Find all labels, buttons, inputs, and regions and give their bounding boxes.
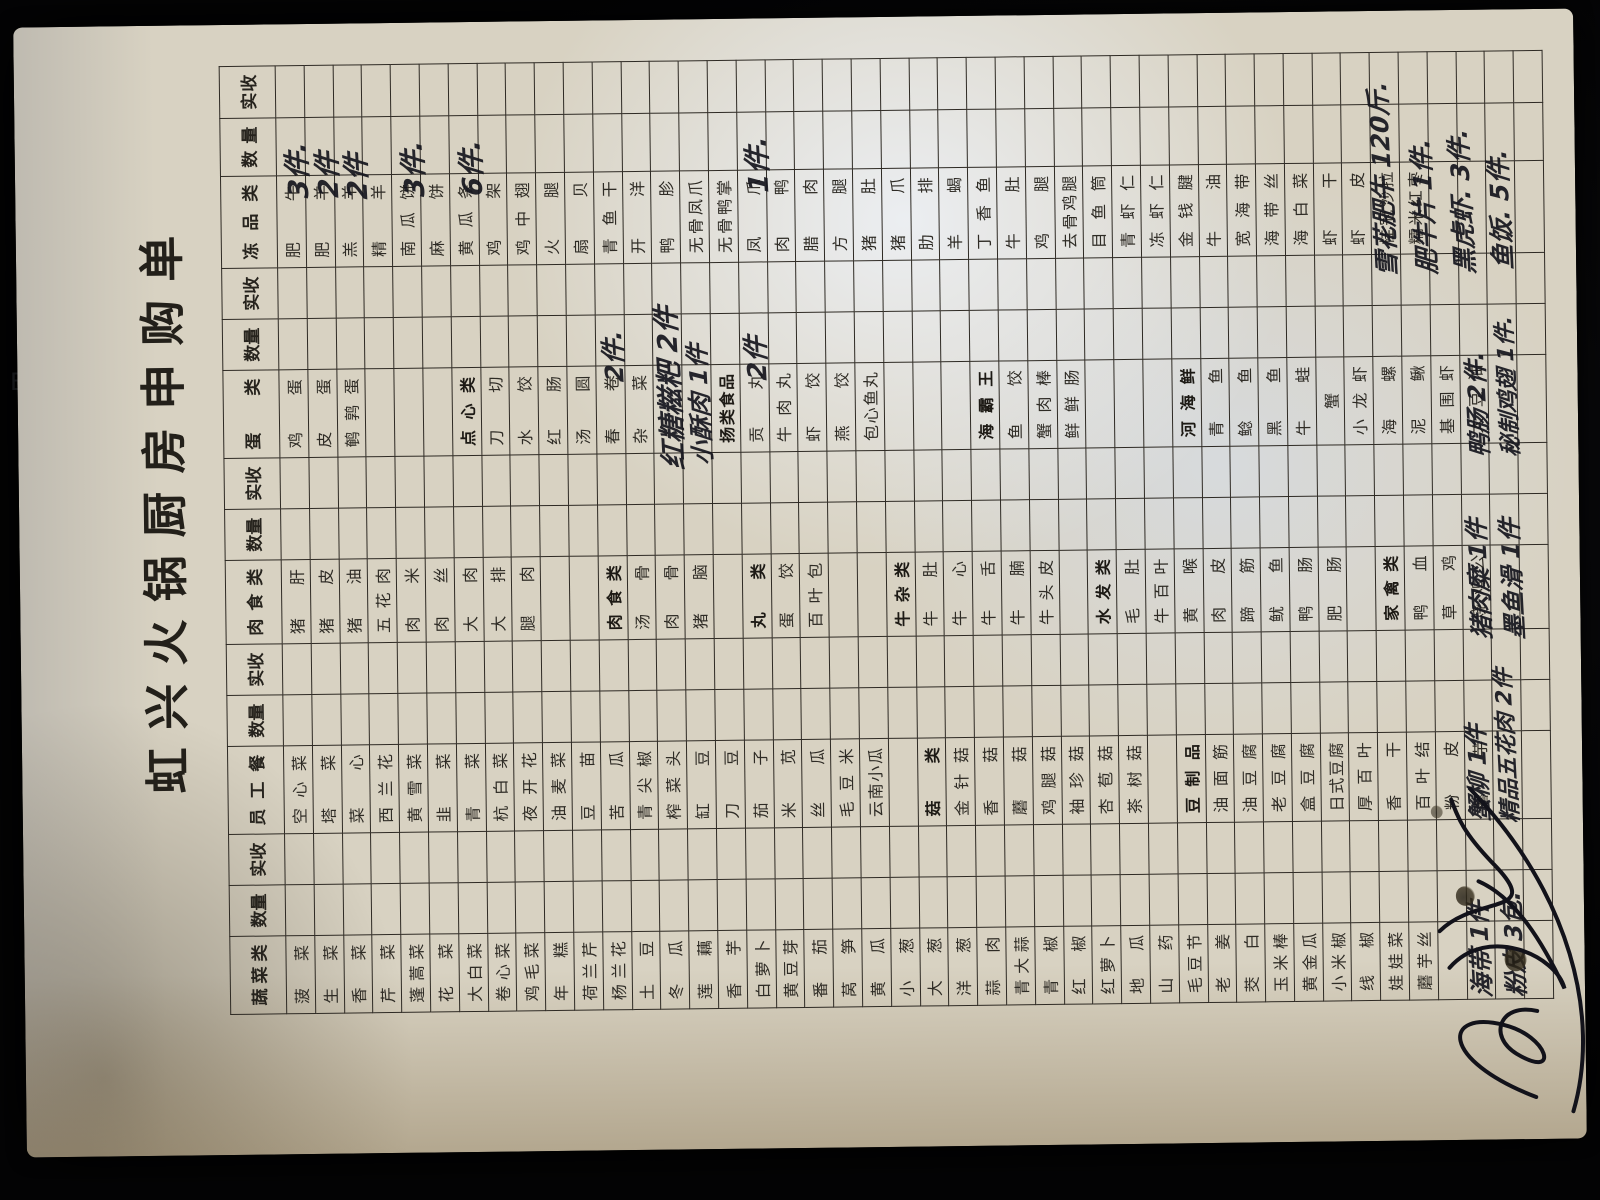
item-cell: 燕饺 [826, 363, 856, 451]
qty-cell [367, 508, 396, 559]
qty-cell [283, 695, 312, 746]
item-cell: 豆制品 [1176, 735, 1206, 823]
qty-cell [511, 506, 540, 557]
received-cell [484, 641, 513, 692]
qty-cell [909, 110, 939, 168]
qty-cell [888, 687, 917, 738]
received-cell [940, 260, 969, 311]
paper-sheet: 虹兴火锅厨房申购单 蔬菜类数量实收员工餐数量实收肉食类数量实收蛋类数量实收冻品类… [13, 9, 1587, 1158]
item-cell: 肥羊 [305, 175, 335, 267]
item-cell [540, 557, 570, 641]
qty-cell [1286, 306, 1315, 357]
received-cell [362, 65, 391, 117]
received-cell [1341, 53, 1370, 105]
item-cell: 羊蝎 [939, 168, 969, 260]
received-cell [774, 828, 803, 879]
received-cell [1120, 823, 1149, 874]
column-header: 数量 [225, 509, 282, 561]
item-cell: 豆苗 [571, 742, 601, 830]
received-cell [1513, 51, 1542, 103]
item-cell: 基围虾 [1431, 356, 1461, 444]
item-cell: 香菇 [975, 737, 1005, 825]
qty-cell [573, 881, 602, 932]
column-header: 数量 [227, 695, 284, 747]
received-cell [889, 826, 918, 877]
received-cell [424, 456, 453, 507]
item-cell: 糯米红枣 [1399, 162, 1429, 254]
received-cell [1434, 630, 1463, 681]
received-cell [801, 637, 830, 688]
item-cell: 牛肚 [915, 552, 945, 636]
received-cell [1285, 255, 1314, 306]
item-cell: 缸豆 [687, 741, 717, 829]
qty-cell [1084, 309, 1113, 360]
received-cell [539, 455, 568, 506]
qty-cell [830, 688, 859, 739]
received-cell [796, 261, 825, 312]
qty-cell [1284, 105, 1314, 163]
item-cell: 去骨鸡腿 [1054, 166, 1084, 258]
item-cell: 青虾仁 [1112, 165, 1142, 257]
item-cell: 虾饺 [797, 363, 827, 451]
qty-cell [1060, 685, 1089, 736]
qty-cell [516, 882, 545, 933]
qty-cell [338, 508, 367, 559]
qty-cell [458, 883, 487, 934]
qty-cell [1514, 103, 1544, 161]
received-cell [657, 639, 686, 690]
item-cell [1428, 162, 1458, 254]
item-cell: 五花肉 [368, 559, 398, 643]
qty-cell [659, 880, 688, 931]
qty-cell [1147, 684, 1176, 735]
received-cell [455, 642, 484, 693]
qty-cell [1027, 310, 1056, 361]
item-cell: 香菜 [343, 935, 373, 1013]
item-cell: 油豆腐 [1234, 734, 1264, 822]
qty-cell [969, 310, 998, 361]
qty-cell [1207, 873, 1236, 924]
item-cell [682, 365, 712, 453]
received-cell [1175, 633, 1204, 684]
qty-cell [914, 501, 943, 552]
received-cell [313, 833, 342, 884]
received-cell [1115, 447, 1144, 498]
qty-cell [285, 885, 314, 936]
item-cell: 蛋饺 [771, 554, 801, 638]
qty-cell [765, 112, 795, 170]
item-cell [1491, 545, 1521, 629]
item-cell: 牛肉丸 [768, 364, 798, 452]
received-cell [1235, 822, 1264, 873]
qty-cell [276, 118, 306, 176]
qty-cell [1204, 683, 1233, 734]
qty-cell [621, 113, 651, 171]
received-cell [544, 830, 573, 881]
received-cell [477, 63, 506, 115]
received-cell [390, 64, 419, 116]
item-cell: 肉食类 [598, 556, 628, 640]
received-cell [1489, 443, 1518, 494]
received-cell [1206, 822, 1235, 873]
item-cell: 火腿 [536, 173, 566, 265]
column-header: 实收 [229, 834, 286, 886]
column-header: 实收 [224, 458, 281, 510]
qty-cell [825, 312, 854, 363]
received-cell [1148, 823, 1177, 874]
item-cell: 扬类食品 [711, 364, 741, 452]
qty-cell [972, 500, 1001, 551]
item-cell: 牛肚 [996, 167, 1026, 259]
received-cell [1264, 822, 1293, 873]
item-cell: 凤爪 [737, 170, 767, 262]
item-cell: 牛蛙 [1287, 357, 1317, 445]
qty-cell [281, 509, 310, 560]
received-cell [1062, 824, 1091, 875]
received-cell [1485, 51, 1514, 103]
received-cell [767, 262, 796, 313]
item-cell [1515, 161, 1545, 253]
item-cell: 毛豆节 [1178, 925, 1208, 1003]
item-cell: 草鸡 [1433, 546, 1463, 630]
item-cell: 肋排 [910, 168, 940, 260]
item-cell: 黄喉 [1174, 549, 1204, 633]
received-cell [333, 65, 362, 117]
received-cell [1283, 53, 1312, 105]
item-cell: 春卷 [596, 366, 626, 454]
item-cell: 贡丸 [740, 364, 770, 452]
item-cell: 黄金瓜 [1294, 923, 1324, 1001]
received-cell [1518, 443, 1547, 494]
qty-cell [1003, 686, 1032, 737]
item-cell: 金针菇 [946, 738, 976, 826]
item-cell [884, 362, 914, 450]
received-cell [1113, 257, 1142, 308]
received-cell [1432, 444, 1461, 495]
qty-cell [1202, 497, 1231, 548]
item-cell: 年糕 [545, 932, 575, 1010]
qty-cell [916, 687, 945, 738]
qty-cell [861, 878, 890, 929]
item-cell: 大白菜 [459, 934, 489, 1012]
item-cell: 卷心菜 [487, 933, 517, 1011]
qty-cell [1399, 104, 1429, 162]
qty-cell [597, 505, 626, 556]
received-cell [1427, 52, 1456, 104]
item-cell [1147, 735, 1177, 823]
item-cell: 丝瓜 [802, 739, 832, 827]
item-cell: 杨兰花 [603, 932, 633, 1010]
item-cell: 黄雪菜 [399, 744, 429, 832]
qty-cell [1082, 108, 1112, 166]
received-cell [1345, 445, 1374, 496]
qty-cell [686, 690, 715, 741]
qty-cell [1235, 873, 1264, 924]
item-cell [713, 554, 743, 638]
received-cell [1398, 52, 1427, 104]
qty-cell [1432, 495, 1461, 546]
received-cell [513, 641, 542, 692]
received-cell [1348, 631, 1377, 682]
item-cell: 菠菜 [286, 936, 316, 1014]
item-cell: 刀切 [480, 367, 510, 455]
received-cell [882, 260, 911, 311]
received-cell [1033, 825, 1062, 876]
received-cell [1053, 56, 1082, 108]
item-cell: 杭白菜 [485, 743, 515, 831]
qty-cell [312, 694, 341, 745]
item-cell: 生菜 [315, 935, 345, 1013]
received-cell [916, 636, 945, 687]
qty-cell [624, 314, 653, 365]
received-cell [1024, 57, 1053, 109]
received-cell [1288, 445, 1317, 496]
item-cell: 蒜肉 [977, 927, 1007, 1005]
qty-cell [1144, 498, 1173, 549]
table-body: 菠菜空心菜猪肝鸡蛋肥牛生菜塔菜猪皮皮蛋肥羊香菜菜心猪油鹌鹑蛋羔羊芹菜西兰花五花肉… [275, 51, 1554, 1014]
qty-cell [571, 691, 600, 742]
received-cell [1225, 54, 1254, 106]
qty-cell [823, 111, 853, 169]
qty-cell [650, 113, 680, 171]
received-cell [885, 450, 914, 501]
received-cell [1117, 633, 1146, 684]
qty-cell [770, 503, 799, 554]
page-title: 虹兴火锅厨房申购单 [123, 44, 200, 969]
qty-cell [1175, 684, 1204, 735]
column-header: 实收 [219, 66, 276, 119]
item-cell [365, 369, 395, 457]
item-cell: 猪肝 [281, 560, 311, 644]
received-cell [860, 827, 889, 878]
qty-cell [1149, 874, 1178, 925]
qty-cell [768, 313, 797, 364]
received-cell [1321, 821, 1350, 872]
qty-cell [1178, 874, 1207, 925]
received-cell [1314, 255, 1343, 306]
received-cell [1139, 55, 1168, 107]
received-cell [592, 62, 621, 114]
qty-cell [1231, 497, 1260, 548]
received-cell [1461, 443, 1490, 494]
qty-cell [1120, 874, 1149, 925]
received-cell [400, 832, 429, 883]
qty-cell [566, 315, 595, 366]
received-cell [422, 266, 451, 317]
received-cell [880, 58, 909, 110]
item-cell: 无骨鸭掌 [708, 170, 738, 262]
item-cell: 扇贝 [564, 172, 594, 264]
item-cell: 河海鲜 [1171, 359, 1201, 447]
received-cell [1201, 446, 1230, 497]
qty-cell [967, 109, 997, 167]
received-cell [1204, 632, 1233, 683]
item-cell: 猪爪 [881, 168, 911, 260]
received-cell [541, 640, 570, 691]
received-cell [1401, 254, 1430, 305]
item-cell: 水发类 [1087, 550, 1117, 634]
item-cell: 鸡蛋 [279, 370, 309, 458]
qty-cell [1029, 500, 1058, 551]
qty-cell [453, 507, 482, 558]
item-cell: 蟹肉棒 [1028, 361, 1058, 449]
qty-cell [314, 884, 343, 935]
qty-cell [856, 502, 885, 553]
column-header: 肉食类 [225, 560, 282, 645]
item-cell: 猪脑 [684, 555, 714, 639]
item-cell: 大肉 [454, 558, 484, 642]
qty-cell [1291, 682, 1320, 733]
received-cell [1487, 253, 1516, 304]
qty-cell [996, 109, 1026, 167]
qty-cell [919, 877, 948, 928]
qty-cell [451, 317, 480, 368]
item-cell: 大豆油 [1459, 355, 1489, 443]
received-cell [918, 826, 947, 877]
received-cell [1403, 444, 1432, 495]
qty-cell [391, 116, 421, 174]
received-cell [1261, 632, 1290, 683]
received-cell [1317, 445, 1346, 496]
qty-cell [278, 319, 307, 370]
received-cell [825, 261, 854, 312]
qty-cell [801, 688, 830, 739]
received-cell [1516, 253, 1545, 304]
qty-cell [429, 883, 458, 934]
item-cell: 腊肉 [795, 169, 825, 261]
qty-cell [657, 690, 686, 741]
qty-cell [398, 693, 427, 744]
received-cell [944, 636, 973, 687]
received-cell [1084, 258, 1113, 309]
item-cell [1347, 547, 1377, 631]
item-cell: 黄豆芽 [775, 930, 805, 1008]
qty-cell [602, 881, 631, 932]
qty-cell [477, 115, 507, 173]
qty-cell [1519, 494, 1548, 545]
received-cell [1170, 257, 1199, 308]
received-cell [937, 58, 966, 110]
item-cell: 家禽类 [1375, 546, 1405, 630]
item-cell: 玉米棒 [1265, 924, 1295, 1002]
received-cell [1199, 256, 1228, 307]
received-cell [911, 260, 940, 311]
qty-cell [1262, 683, 1291, 734]
received-cell [1060, 634, 1089, 685]
qty-cell [1312, 105, 1342, 163]
received-cell [1372, 254, 1401, 305]
received-cell [597, 454, 626, 505]
received-cell [366, 457, 395, 508]
qty-cell [1140, 107, 1170, 165]
received-cell [419, 64, 448, 116]
received-cell [278, 268, 307, 319]
item-cell: 鹌鹑蛋 [336, 369, 366, 457]
received-cell [448, 64, 477, 116]
item-cell: 蹄筋 [1231, 548, 1261, 632]
item-cell: 青鱼干 [593, 172, 623, 264]
item-cell: 泥鳅 [1402, 356, 1432, 444]
item-cell [394, 368, 424, 456]
item-cell: 虾皮 [1342, 163, 1372, 255]
item-cell: 丁香鱼 [968, 167, 998, 259]
received-cell [681, 263, 710, 314]
item-cell: 菜心 [341, 745, 371, 833]
received-cell [395, 456, 424, 507]
qty-cell [974, 686, 1003, 737]
received-cell [856, 451, 885, 502]
received-cell [335, 267, 364, 318]
column-header: 数量 [222, 319, 279, 371]
qty-cell [1521, 680, 1550, 731]
qty-cell [1111, 108, 1141, 166]
received-cell [947, 826, 976, 877]
item-cell: 牛心 [943, 552, 973, 636]
item-cell: 肥肠 [1318, 547, 1348, 631]
item-cell [912, 362, 942, 450]
received-cell [599, 640, 628, 691]
photo-background: + Ente 虹兴火锅厨房申购单 蔬菜类数量实收员工餐数量实收肉食类数量实收蛋类… [0, 0, 1600, 1200]
received-cell [534, 63, 563, 115]
qty-cell [393, 317, 422, 368]
received-cell [769, 452, 798, 503]
item-cell: 青菜 [456, 744, 486, 832]
item-cell: 地瓜 [1121, 925, 1151, 1003]
received-cell [309, 457, 338, 508]
column-header: 数量 [220, 118, 277, 177]
received-cell [364, 267, 393, 318]
item-cell: 线椒 [1351, 923, 1381, 1001]
received-cell [971, 449, 1000, 500]
received-cell [1374, 444, 1403, 495]
received-cell [393, 266, 422, 317]
received-cell [306, 267, 335, 318]
item-cell: 娃娃菜 [1380, 922, 1410, 1000]
qty-cell [1142, 308, 1171, 359]
received-cell [714, 638, 743, 689]
received-cell [1312, 53, 1341, 105]
qty-cell [1264, 873, 1293, 924]
item-cell: 冻虾仁 [1140, 165, 1170, 257]
item-cell: 牛舌 [972, 551, 1002, 635]
received-cell [1228, 256, 1257, 307]
item-cell: 茄子 [744, 740, 774, 828]
item-cell: 肉米 [396, 558, 426, 642]
received-cell [342, 833, 371, 884]
qty-cell [537, 316, 566, 367]
received-cell [450, 266, 479, 317]
item-cell [1517, 355, 1547, 443]
received-cell [628, 639, 657, 690]
received-cell [282, 644, 311, 695]
received-cell [285, 834, 314, 885]
qty-cell [712, 503, 741, 554]
qty-cell [1488, 304, 1517, 355]
qty-cell [943, 501, 972, 552]
received-cell [688, 829, 717, 880]
qty-cell [688, 880, 717, 931]
qty-cell [480, 316, 509, 367]
item-cell: 海白菜 [1284, 163, 1314, 255]
received-cell [563, 62, 592, 114]
item-cell [828, 553, 858, 637]
item-cell [1114, 359, 1144, 447]
qty-cell [336, 318, 365, 369]
received-cell [1230, 446, 1259, 497]
item-cell: 鲜鲜肠 [1056, 360, 1086, 448]
item-cell: 油面筋 [1205, 734, 1235, 822]
qty-cell [715, 689, 744, 740]
